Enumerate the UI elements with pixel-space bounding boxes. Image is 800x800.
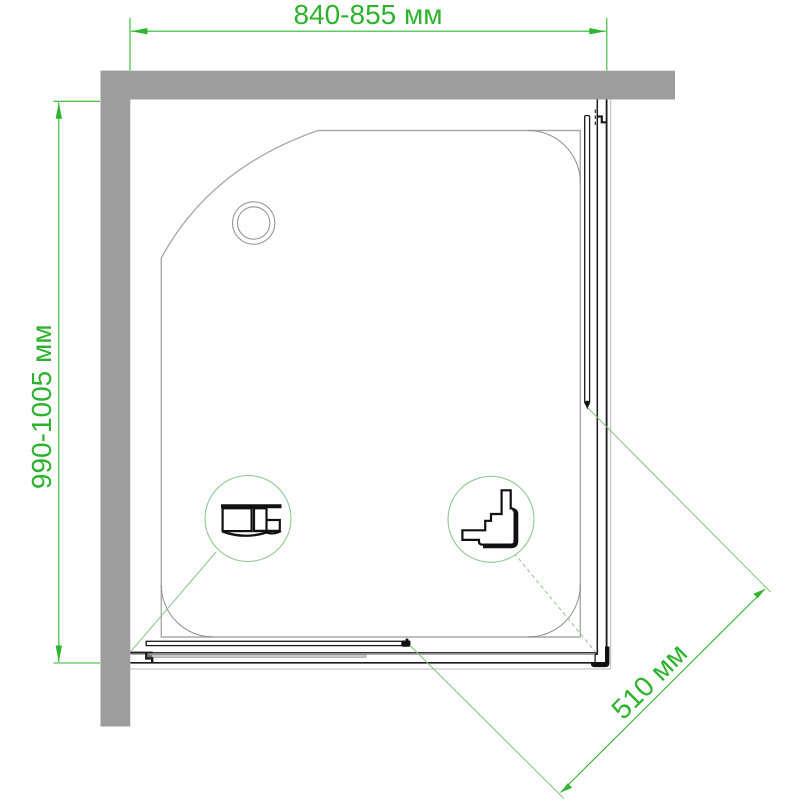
svg-text:840-855 мм: 840-855 мм — [293, 0, 442, 30]
svg-text:990-1005 мм: 990-1005 мм — [26, 324, 57, 489]
